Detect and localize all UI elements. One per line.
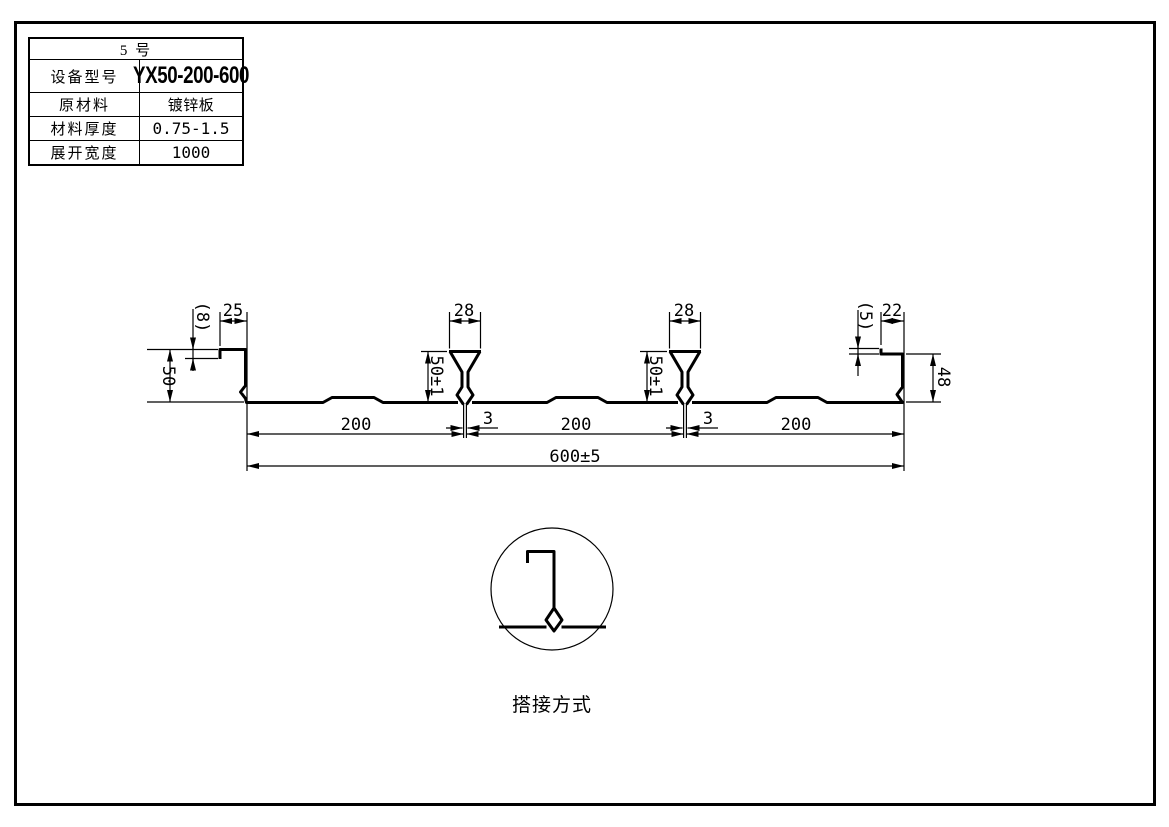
dimension-labels: 25 (8) 50 28 50±1 3 28 50±1 3 22 (5) 48 … bbox=[158, 301, 953, 467]
dim-label-rib1-slot: 3 bbox=[483, 409, 493, 429]
rib-1 bbox=[449, 352, 481, 405]
dim-label-rib2-height: 50±1 bbox=[645, 356, 665, 397]
dim-label-right-height: 48 bbox=[933, 367, 953, 387]
profile-pan bbox=[220, 349, 903, 403]
dim-label-pitch-2: 200 bbox=[561, 415, 592, 435]
rib-1-slot-lines bbox=[464, 404, 467, 438]
extension-lines bbox=[147, 312, 941, 471]
dimension-lines bbox=[170, 309, 933, 466]
lap-detail-circle bbox=[491, 528, 613, 650]
lap-detail-label: 搭接方式 bbox=[512, 694, 592, 716]
dim-label-rib1-height: 50±1 bbox=[426, 356, 446, 397]
dim-label-rib2-slot: 3 bbox=[703, 409, 713, 429]
dim-label-rib2-width: 28 bbox=[674, 301, 694, 321]
dim-label-left-flange: 25 bbox=[223, 301, 243, 321]
dim-label-rib1-width: 28 bbox=[454, 301, 474, 321]
rib-2-slot-lines bbox=[684, 404, 687, 438]
lap-detail-profile bbox=[499, 552, 606, 632]
dim-label-left-height: 50 bbox=[158, 366, 178, 386]
dim-label-pitch-1: 200 bbox=[341, 415, 372, 435]
dim-label-right-flange: 22 bbox=[882, 301, 902, 321]
dim-label-right-lip: (5) bbox=[855, 301, 875, 332]
dim-label-overall: 600±5 bbox=[549, 447, 600, 467]
lap-detail: 搭接方式 bbox=[491, 528, 613, 716]
profile-drawing: 25 (8) 50 28 50±1 3 28 50±1 3 22 (5) 48 … bbox=[0, 0, 1169, 827]
dim-label-left-lip: (8) bbox=[192, 302, 212, 333]
dim-label-pitch-3: 200 bbox=[781, 415, 812, 435]
rib-2 bbox=[669, 352, 701, 405]
